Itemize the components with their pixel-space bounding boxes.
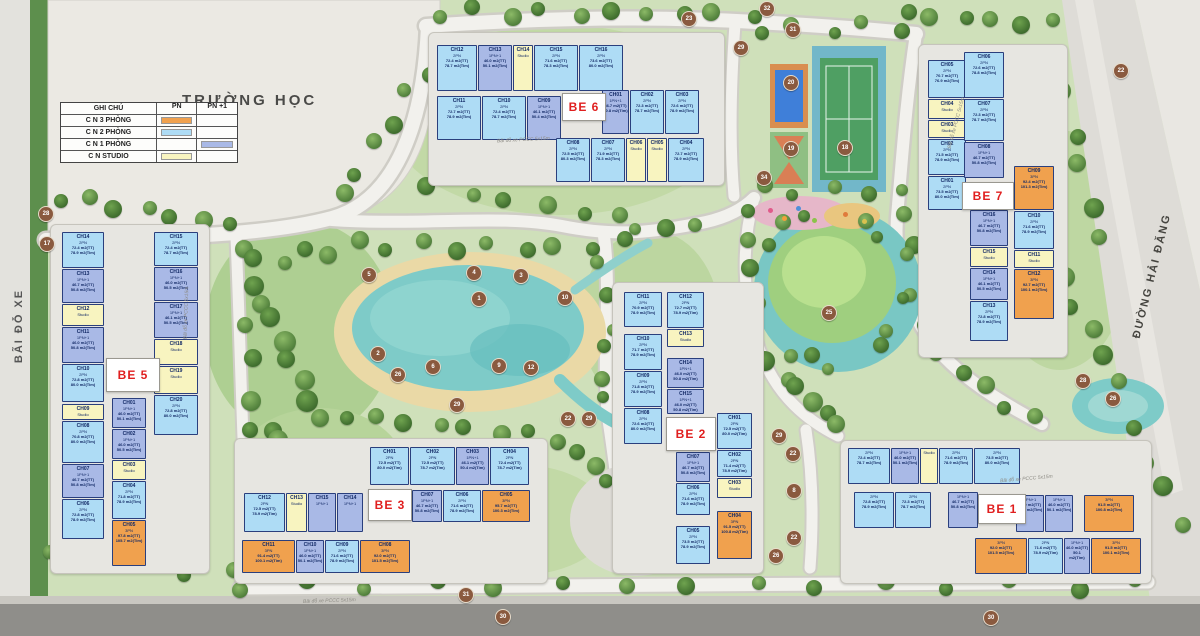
playground-dot — [812, 218, 817, 223]
site-plan-map: CH142PN72.4 m2(TT)78.9 m2(Tim)CH131PN+14… — [0, 0, 1200, 636]
markers-layer: 3223293120191834225431102266912292229252… — [0, 0, 1200, 636]
amenity-marker-28: 28 — [1075, 373, 1091, 389]
amenity-marker-29: 29 — [733, 40, 749, 56]
amenity-marker-31: 31 — [458, 587, 474, 603]
fire-lane-caption: Bãi đỗ xe PCCC 5x15m — [182, 287, 190, 340]
legend-row-label: C N 1 PHÒNG — [61, 139, 157, 150]
legend-table: GHI CHÚ PN PN +1 C N 3 PHÒNGC N 2 PHÒNGC… — [60, 102, 238, 163]
amenity-marker-22: 22 — [1113, 63, 1129, 79]
legend-row-label: C N 2 PHÒNG — [61, 127, 157, 138]
amenity-marker-19: 19 — [783, 141, 799, 157]
legend-row: C N 2 PHÒNG — [61, 126, 237, 138]
legend-swatch-STU — [161, 153, 193, 160]
amenity-marker-20: 20 — [783, 75, 799, 91]
legend-swatch-1PN1 — [201, 141, 233, 148]
amenity-marker-4: 4 — [466, 265, 482, 281]
amenity-marker-5: 5 — [361, 267, 377, 283]
legend-row-label: C N 3 PHÒNG — [61, 115, 157, 126]
fire-lane-caption: Bãi đỗ xe PCCC 5x15m — [497, 136, 550, 145]
amenity-marker-6: 6 — [425, 359, 441, 375]
amenity-marker-29: 29 — [771, 428, 787, 444]
amenity-marker-23: 23 — [681, 11, 697, 27]
amenity-marker-29: 29 — [581, 411, 597, 427]
amenity-marker-1: 1 — [471, 291, 487, 307]
amenity-marker-29: 29 — [449, 397, 465, 413]
amenity-marker-26: 26 — [390, 367, 406, 383]
amenity-marker-9: 9 — [491, 358, 507, 374]
legend-row: C N 1 PHÒNG — [61, 138, 237, 150]
legend-row-label: C N STUDIO — [61, 151, 157, 162]
amenity-marker-17: 17 — [39, 236, 55, 252]
amenity-marker-31: 31 — [785, 22, 801, 38]
playground-dot — [796, 206, 801, 211]
playground-dot — [782, 216, 787, 221]
amenity-marker-18: 18 — [837, 140, 853, 156]
amenity-marker-3: 3 — [513, 268, 529, 284]
amenity-marker-2: 2 — [370, 346, 386, 362]
amenity-marker-30: 30 — [495, 609, 511, 625]
amenity-marker-8: 8 — [786, 483, 802, 499]
playground-dot — [768, 208, 773, 213]
fire-lane-caption: Bãi đỗ xe PCCC 5x15m — [1000, 474, 1053, 485]
playground-dot — [862, 219, 867, 224]
amenity-marker-28: 28 — [38, 206, 54, 222]
legend-header: GHI CHÚ PN PN +1 — [61, 103, 237, 114]
amenity-marker-32: 32 — [759, 1, 775, 17]
amenity-marker-22: 22 — [785, 446, 801, 462]
playground-dot — [843, 212, 848, 217]
legend-row: C N 3 PHÒNG — [61, 114, 237, 126]
fire-lane-caption: Bãi đỗ xe PCCC 5x15m — [303, 597, 356, 605]
legend-title: GHI CHÚ — [61, 103, 157, 114]
legend-swatch-3PN — [161, 117, 193, 124]
amenity-marker-22: 22 — [560, 411, 576, 427]
amenity-marker-12: 12 — [523, 360, 539, 376]
amenity-marker-30: 30 — [983, 610, 999, 626]
parking-street-label: BÃI ĐỖ XE — [13, 281, 25, 371]
legend-col-pn: PN — [157, 103, 198, 114]
amenity-marker-25: 25 — [821, 305, 837, 321]
amenity-marker-26: 26 — [1105, 391, 1121, 407]
legend-row: C N STUDIO — [61, 150, 237, 162]
amenity-marker-10: 10 — [557, 290, 573, 306]
fire-lane-caption: Bãi đỗ xe PCCC 5x15m — [947, 97, 966, 150]
amenity-marker-22: 22 — [786, 530, 802, 546]
legend-swatch-2PN — [161, 129, 193, 136]
amenity-marker-26: 26 — [768, 548, 784, 564]
legend-col-pn1: PN +1 — [197, 103, 237, 114]
amenity-marker-34: 34 — [756, 170, 772, 186]
